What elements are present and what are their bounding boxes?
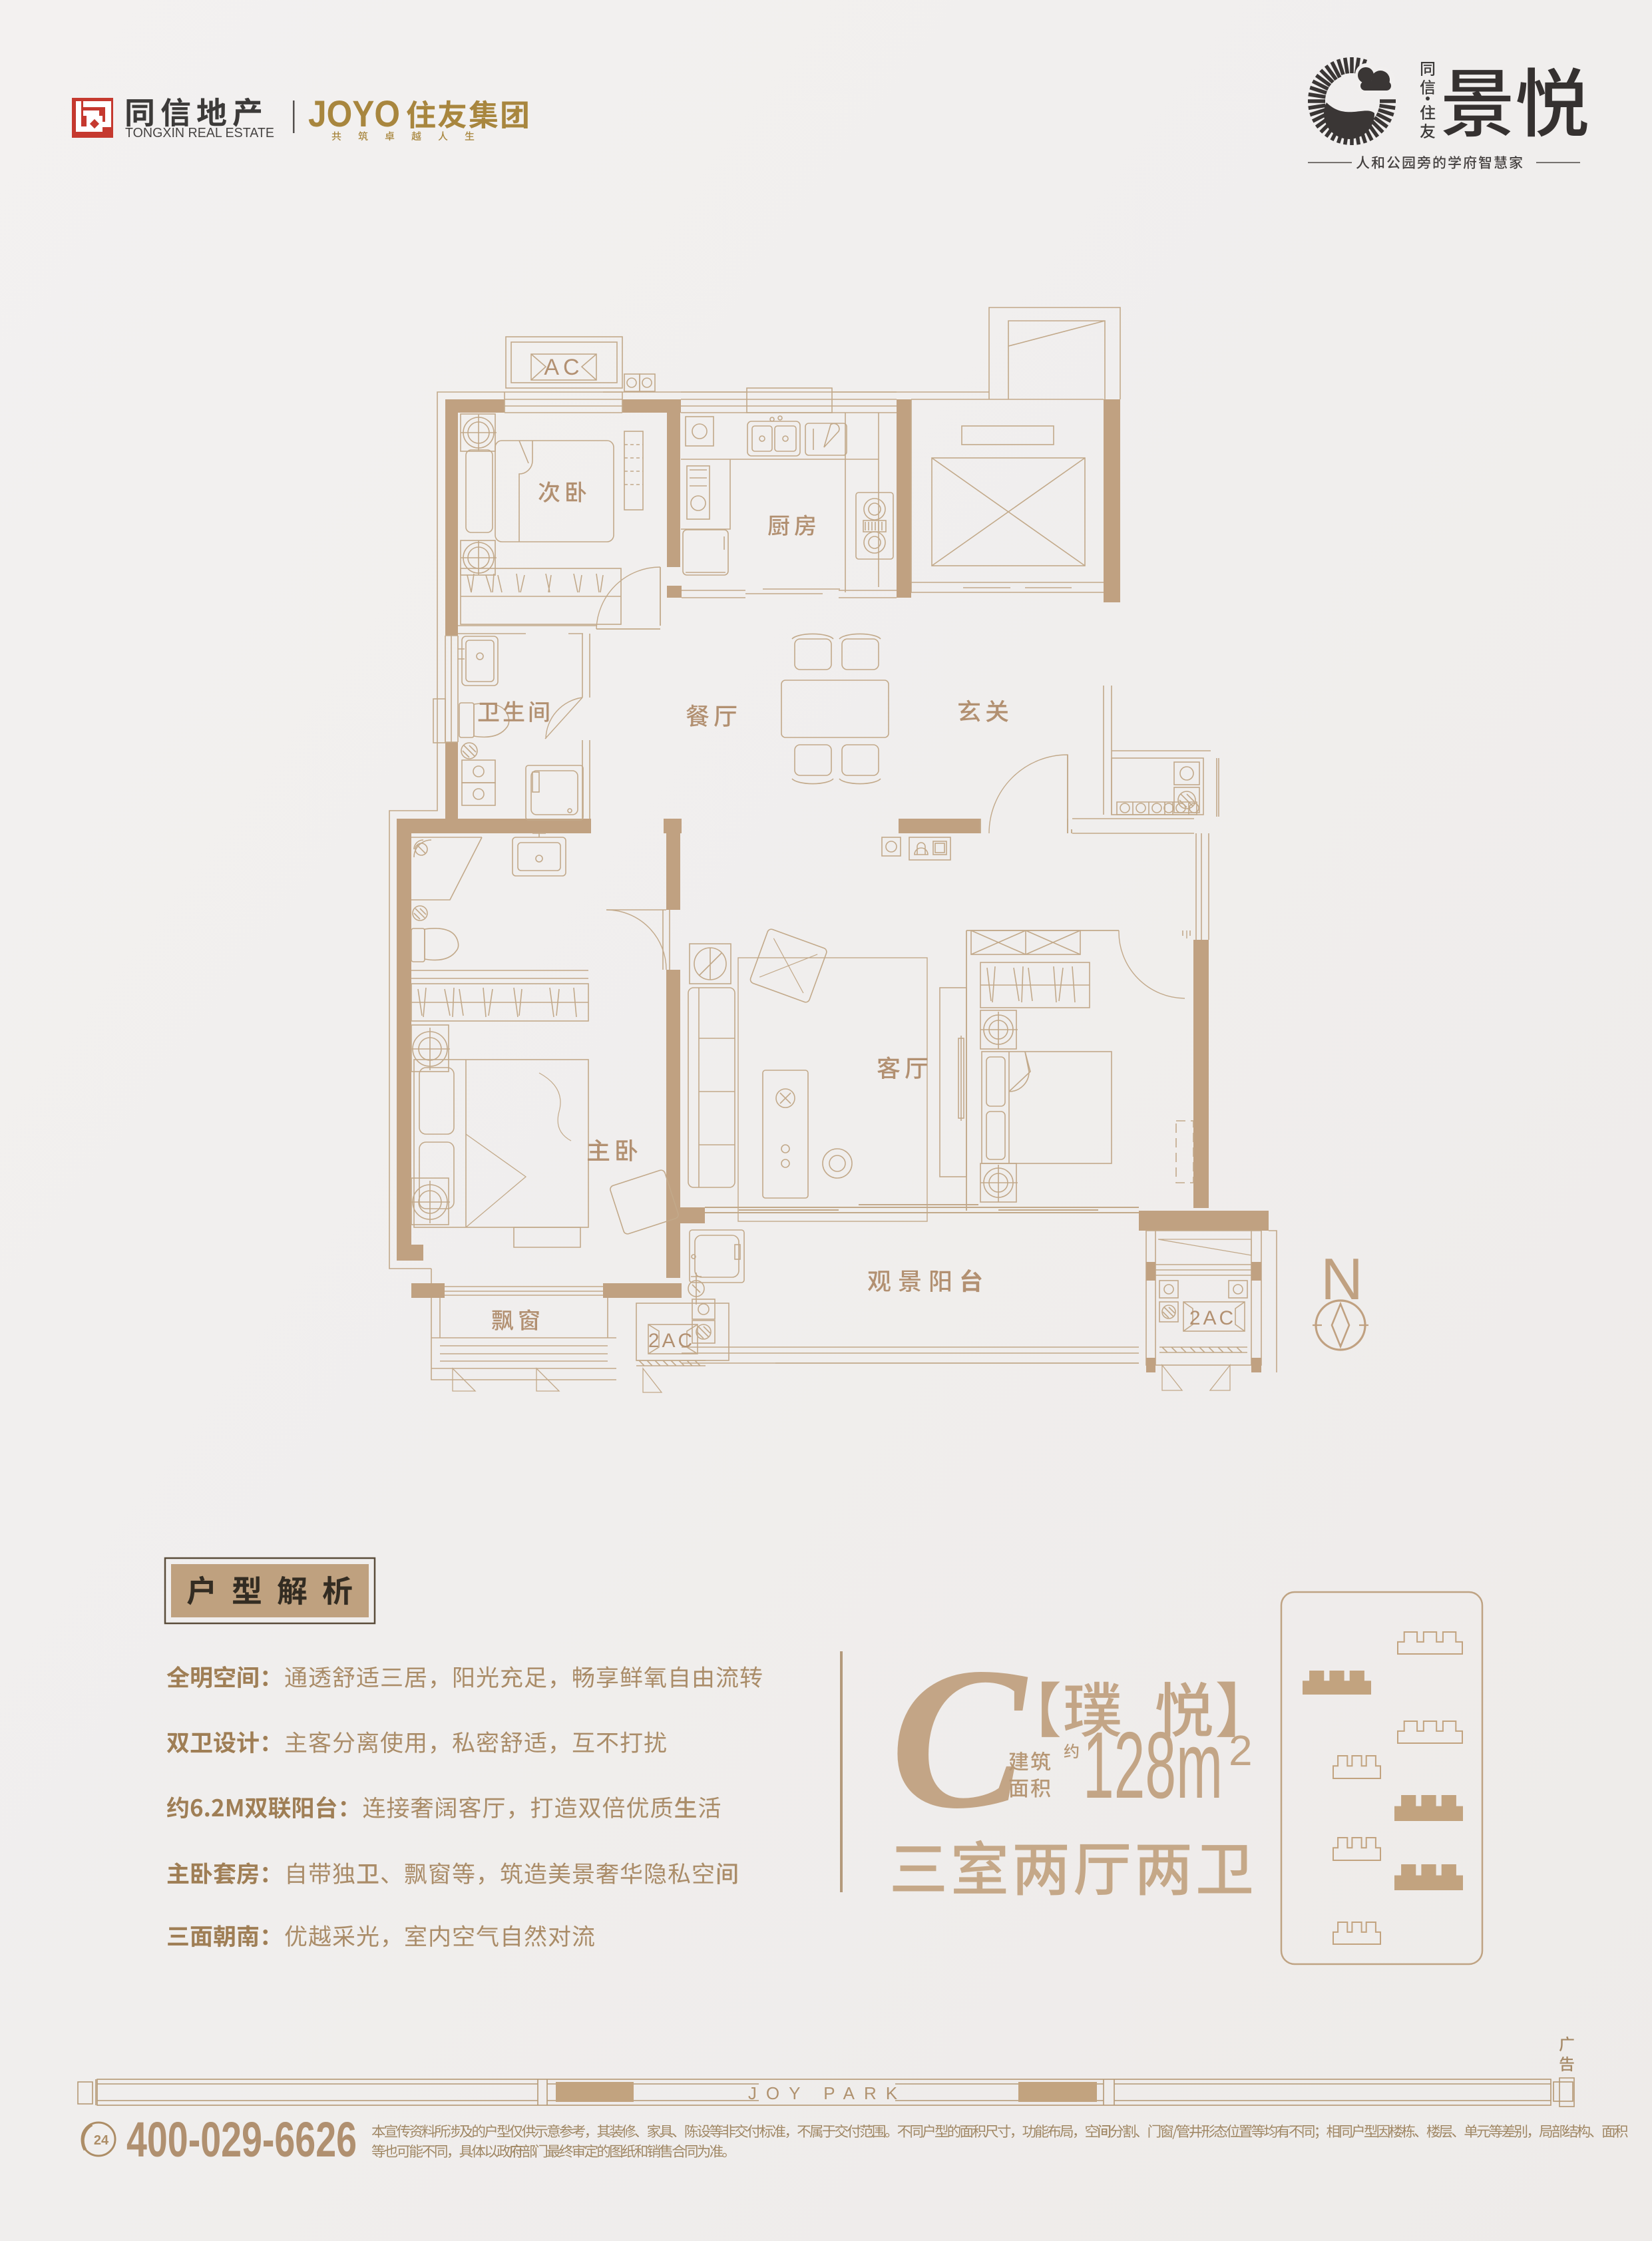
svg-text:128m: 128m — [1083, 1713, 1223, 1818]
svg-text:24: 24 — [94, 2133, 109, 2148]
svg-text:C: C — [891, 1625, 1030, 1850]
svg-text:400-029-6626: 400-029-6626 — [126, 2112, 357, 2167]
svg-text:2AC: 2AC — [1189, 1307, 1236, 1329]
svg-text:2: 2 — [1229, 1727, 1253, 1774]
svg-text:2AC: 2AC — [648, 1330, 695, 1352]
svg-text:N: N — [1321, 1246, 1363, 1312]
svg-text:JOY PARK: JOY PARK — [748, 2083, 907, 2103]
svg-text:JOYO: JOYO — [308, 93, 400, 134]
svg-text:AC: AC — [544, 355, 583, 380]
svg-text:TONGXIN REAL ESTATE: TONGXIN REAL ESTATE — [125, 126, 274, 140]
